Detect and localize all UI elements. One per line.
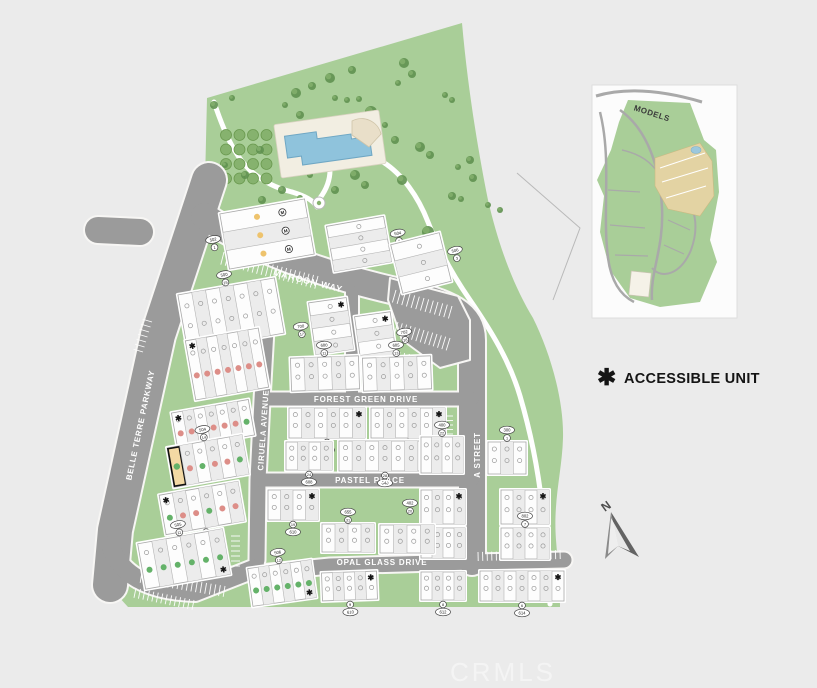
accessible-unit-star-icon: ✱ bbox=[456, 492, 463, 501]
svg-text:655: 655 bbox=[345, 510, 353, 515]
svg-text:614: 614 bbox=[519, 611, 527, 616]
tree-icon bbox=[332, 95, 338, 101]
building-block: ✱ bbox=[183, 326, 271, 403]
svg-text:6: 6 bbox=[521, 604, 523, 608]
inset-facility bbox=[629, 271, 651, 297]
tree-icon bbox=[282, 102, 288, 108]
orchard-tree-icon bbox=[234, 144, 245, 155]
tree-icon bbox=[397, 175, 407, 185]
inset-pond bbox=[691, 147, 701, 154]
accessible-unit-star-icon: ✱ bbox=[309, 492, 316, 501]
street-label-a-street: A STREET bbox=[473, 432, 482, 478]
orchard-tree-icon bbox=[234, 130, 245, 141]
orchard-tree-icon bbox=[248, 159, 259, 170]
accessible-unit-star-icon: ✱ bbox=[436, 410, 443, 419]
tree-icon bbox=[469, 174, 477, 182]
svg-text:702: 702 bbox=[400, 329, 408, 335]
tree-icon bbox=[408, 70, 416, 78]
unit bbox=[453, 437, 464, 473]
svg-text:608: 608 bbox=[306, 480, 314, 485]
tree-icon bbox=[331, 186, 339, 194]
svg-text:20: 20 bbox=[408, 510, 412, 514]
svg-text:31: 31 bbox=[346, 519, 350, 523]
unit bbox=[376, 357, 391, 390]
accessible-unit-star-icon: ✱ bbox=[540, 492, 547, 501]
svg-text:19: 19 bbox=[291, 523, 295, 527]
svg-text:15: 15 bbox=[223, 281, 228, 286]
building-block: ✱6109 bbox=[319, 569, 380, 617]
unit bbox=[432, 437, 443, 473]
orchard-tree-icon bbox=[261, 173, 272, 184]
orchard-tree-icon bbox=[234, 159, 245, 170]
tree-icon bbox=[256, 146, 264, 154]
tree-icon bbox=[361, 181, 369, 189]
svg-text:8: 8 bbox=[442, 603, 444, 607]
svg-text:24: 24 bbox=[307, 473, 311, 477]
accessible-star-icon: ✱ bbox=[597, 364, 616, 390]
fountain bbox=[313, 197, 325, 209]
svg-text:802: 802 bbox=[522, 514, 530, 519]
unit bbox=[304, 357, 319, 390]
tree-icon bbox=[325, 73, 335, 83]
building-block: 6128 bbox=[419, 570, 467, 616]
tree-icon bbox=[291, 88, 301, 98]
orchard-tree-icon bbox=[221, 144, 232, 155]
tree-icon bbox=[278, 186, 286, 194]
tree-icon bbox=[296, 111, 304, 119]
svg-text:12: 12 bbox=[276, 558, 281, 563]
tree-icon bbox=[382, 122, 388, 128]
svg-text:9: 9 bbox=[349, 603, 351, 607]
orchard-tree-icon bbox=[261, 130, 272, 141]
svg-text:610: 610 bbox=[347, 609, 355, 614]
legend-accessible-unit: ACCESSIBLE UNIT bbox=[624, 371, 760, 387]
orchard-tree-icon bbox=[248, 130, 259, 141]
tree-icon bbox=[344, 97, 350, 103]
svg-text:1: 1 bbox=[506, 437, 508, 441]
tree-icon bbox=[442, 92, 448, 98]
tree-icon bbox=[426, 151, 434, 159]
building-block bbox=[378, 523, 436, 555]
svg-text:700: 700 bbox=[297, 323, 305, 329]
tree-icon bbox=[485, 202, 491, 208]
svg-text:402: 402 bbox=[407, 501, 415, 506]
tree-icon bbox=[448, 192, 456, 200]
legend: ✱ ACCESSIBLE UNIT bbox=[597, 364, 760, 390]
svg-text:600: 600 bbox=[320, 342, 328, 347]
orchard-tree-icon bbox=[221, 130, 232, 141]
svg-text:14: 14 bbox=[201, 436, 206, 441]
svg-text:22: 22 bbox=[440, 432, 444, 436]
building-block: ✱6146 bbox=[478, 569, 566, 617]
street-label-pastel-place: PASTEL PLACE bbox=[335, 476, 405, 485]
compass-n-label: N bbox=[598, 498, 613, 514]
road-stub bbox=[98, 230, 140, 232]
crmls-watermark: CRMLS bbox=[450, 657, 556, 687]
tree-icon bbox=[210, 101, 218, 109]
svg-text:11: 11 bbox=[177, 531, 182, 536]
tree-icon bbox=[350, 170, 360, 180]
svg-text:610: 610 bbox=[290, 530, 298, 535]
svg-text:18: 18 bbox=[403, 338, 408, 343]
tree-icon bbox=[415, 142, 425, 152]
svg-text:17: 17 bbox=[300, 332, 305, 337]
svg-text:13: 13 bbox=[394, 351, 398, 355]
tree-icon bbox=[241, 171, 249, 179]
svg-text:612: 612 bbox=[440, 610, 448, 615]
svg-text:506: 506 bbox=[274, 549, 282, 555]
svg-text:7: 7 bbox=[524, 523, 526, 527]
accessible-unit-star-icon: ✱ bbox=[555, 573, 562, 582]
street-label-opal-glass: OPAL GLASS DRIVE bbox=[337, 558, 428, 567]
north-arrow-notch bbox=[608, 518, 630, 554]
tree-icon bbox=[458, 196, 464, 202]
north-compass: N bbox=[598, 498, 639, 559]
tree-icon bbox=[391, 136, 399, 144]
svg-text:11: 11 bbox=[322, 351, 326, 355]
tree-icon bbox=[449, 97, 455, 103]
tree-icon bbox=[497, 207, 503, 213]
tree-icon bbox=[229, 95, 235, 101]
tree-icon bbox=[466, 156, 474, 164]
tree-icon bbox=[348, 66, 356, 74]
site-map-page: MMM50215042506350015✱70017✱70218✱✱502155… bbox=[0, 0, 817, 688]
svg-text:400: 400 bbox=[439, 423, 447, 428]
tree-icon bbox=[455, 164, 461, 170]
community-site-map: MMM50215042506350015✱70017✱70218✱✱502155… bbox=[0, 0, 817, 688]
unit bbox=[403, 356, 418, 389]
inset-map: MODELS bbox=[592, 85, 737, 318]
accessible-unit-star-icon: ✱ bbox=[367, 573, 374, 582]
tree-icon bbox=[399, 58, 409, 68]
tree-icon bbox=[258, 196, 266, 204]
inset-callout-lines bbox=[517, 173, 580, 300]
unit bbox=[331, 356, 346, 389]
tree-icon bbox=[356, 96, 362, 102]
accessible-unit-star-icon: ✱ bbox=[356, 410, 363, 419]
orchard-tree-icon bbox=[261, 159, 272, 170]
tree-icon bbox=[308, 82, 316, 90]
tree-icon bbox=[395, 80, 401, 86]
svg-text:300: 300 bbox=[504, 428, 512, 433]
svg-text:605: 605 bbox=[392, 342, 400, 347]
orchard-tree-icon bbox=[248, 173, 259, 184]
street-label-forest-green: FOREST GREEN DRIVE bbox=[314, 395, 418, 404]
